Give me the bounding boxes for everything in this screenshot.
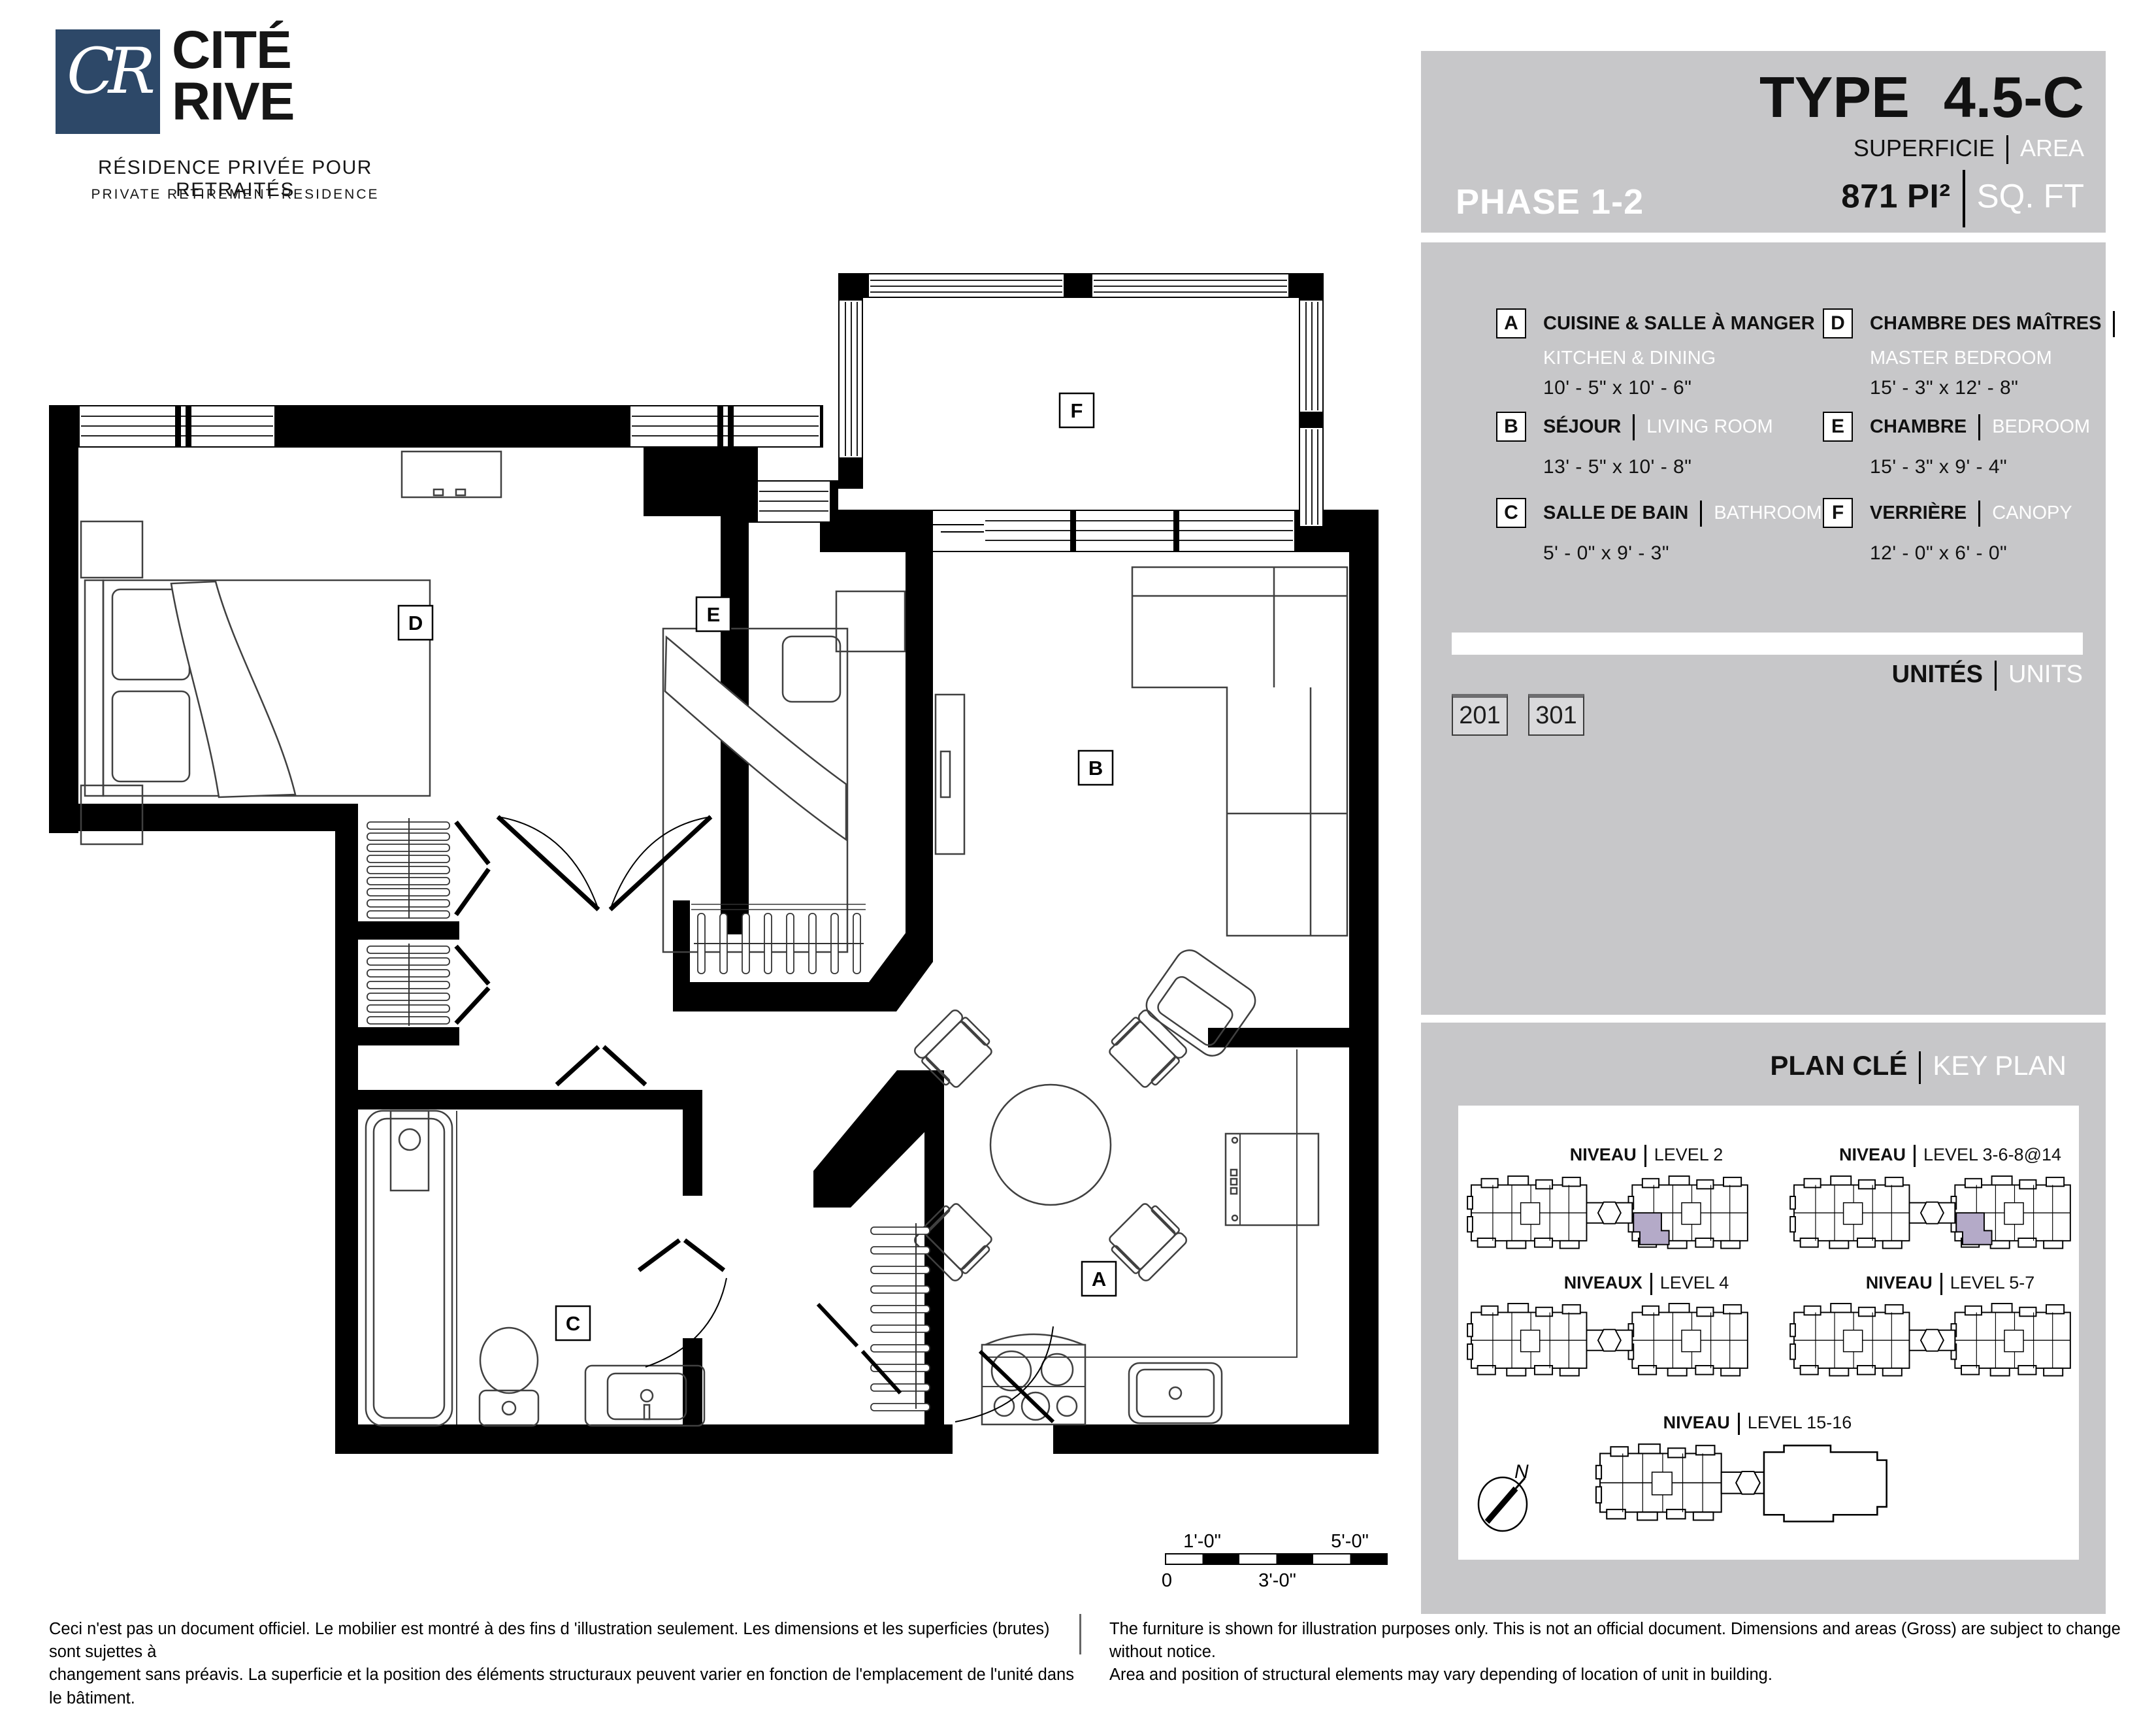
- compass-icon: N: [1478, 1461, 1529, 1531]
- building-level-2: [1467, 1176, 1748, 1249]
- room-label-e: E: [696, 597, 730, 631]
- svg-text:B: B: [1088, 757, 1103, 780]
- room-label-f: F: [1060, 393, 1094, 427]
- key-plan-buildings: N: [1458, 1106, 2079, 1560]
- plan-walls: [49, 273, 1379, 1454]
- nightstand: [81, 521, 142, 578]
- compass-north-label: N: [1514, 1461, 1529, 1483]
- room-label-c: C: [556, 1306, 590, 1340]
- scale-label-3ft: 3'-0": [1258, 1570, 1296, 1591]
- bed-headboard-d: [85, 580, 103, 796]
- unit-number-301: 301: [1528, 694, 1584, 736]
- legend-item-f: F VERRIÈRECANOPY 12' - 0" x 6' - 0": [1823, 498, 2072, 565]
- legend-item-e: E CHAMBREBEDROOM 15' - 3" x 9' - 4": [1823, 412, 2090, 478]
- units-heading: UNITÉSUNITS: [1892, 661, 2083, 691]
- legend-panel: A CUISINE & SALLE À MANGER KITCHEN & DIN…: [1421, 242, 2106, 1015]
- key-plan-title: PLAN CLÉKEY PLAN: [1770, 1050, 2066, 1084]
- plan-doors: [456, 817, 1053, 1422]
- phase-label: PHASE 1-2: [1456, 182, 1644, 222]
- floor-plan-drawing: D E B F A C 1'-0" 5'-0" 0 3'-0": [0, 0, 1437, 1666]
- legend-key-d: D: [1823, 308, 1853, 338]
- unit-type-title: TYPE4.5-C: [1759, 64, 2084, 131]
- legend-key-a: A: [1496, 308, 1526, 338]
- building-level-5-7: [1790, 1304, 2070, 1376]
- room-label-b: B: [1079, 751, 1113, 785]
- area-value-row: 871 PI²SQ. FT: [1841, 170, 2084, 227]
- toilet: [480, 1328, 538, 1393]
- disclaimer-fr: Ceci n'est pas un document officiel. Le …: [49, 1618, 1075, 1710]
- sofa-sectional: [1132, 567, 1347, 936]
- legend-key-f: F: [1823, 498, 1853, 528]
- disclaimer-en: The furniture is shown for illustration …: [1109, 1618, 2135, 1687]
- disclaimer-divider: [1079, 1614, 1081, 1654]
- svg-text:D: D: [408, 612, 423, 634]
- building-level-4: [1467, 1304, 1748, 1376]
- bathtub: [366, 1111, 452, 1426]
- unit-number-201: 201: [1452, 694, 1508, 736]
- scale-bar: 1'-0" 5'-0" 0 3'-0": [1162, 1531, 1387, 1591]
- scale-label-1ft: 1'-0": [1183, 1531, 1221, 1552]
- legend-item-d: D CHAMBRE DES MAÎTRES MASTER BEDROOM 15'…: [1823, 308, 2127, 399]
- svg-text:F: F: [1071, 399, 1083, 422]
- legend-item-c: C SALLE DE BAINBATHROOM 5' - 0" x 9' - 3…: [1496, 498, 1822, 565]
- svg-text:C: C: [566, 1312, 580, 1335]
- divider-bar: [1452, 633, 2083, 655]
- dresser: [402, 452, 501, 497]
- svg-text:E: E: [707, 603, 721, 626]
- header-panel: PHASE 1-2 TYPE4.5-C SUPERFICIEAREA 871 P…: [1421, 51, 2106, 233]
- dining-table: [990, 1085, 1111, 1205]
- building-level-15-16: [1596, 1444, 1887, 1521]
- key-plan-panel: PLAN CLÉKEY PLAN NIVEAULEVEL 2 NIVEAULEV…: [1421, 1023, 2106, 1614]
- area-label-row: SUPERFICIEAREA: [1854, 135, 2084, 164]
- building-level-3-6-8: [1790, 1176, 2070, 1249]
- legend-key-c: C: [1496, 498, 1526, 528]
- legend-key-b: B: [1496, 412, 1526, 442]
- kitchen-sink: [1129, 1363, 1222, 1423]
- legend-item-b: B SÉJOURLIVING ROOM 13' - 5" x 10' - 8": [1496, 412, 1773, 478]
- room-label-d: D: [399, 606, 433, 640]
- room-label-a: A: [1082, 1262, 1116, 1296]
- legend-item-a: A CUISINE & SALLE À MANGER KITCHEN & DIN…: [1496, 308, 1840, 399]
- legend-key-e: E: [1823, 412, 1853, 442]
- scale-label-0: 0: [1162, 1570, 1172, 1591]
- svg-text:A: A: [1092, 1268, 1106, 1291]
- floorplan-sheet: { "logo": { "monogram": "CR", "name1": "…: [0, 0, 2156, 1666]
- scale-label-5ft: 5'-0": [1331, 1531, 1369, 1552]
